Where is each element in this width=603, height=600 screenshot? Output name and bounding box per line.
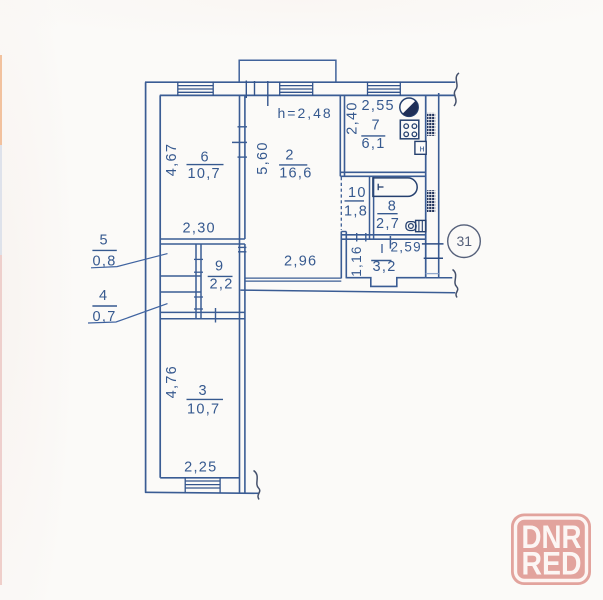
svg-text:2,7: 2,7 [376,216,400,232]
svg-text:31: 31 [457,233,473,249]
svg-text:5: 5 [100,232,109,248]
svg-text:10,7: 10,7 [188,166,221,182]
svg-text:9: 9 [215,259,224,275]
svg-text:10,7: 10,7 [187,401,220,417]
svg-text:8: 8 [388,199,397,215]
svg-text:2,25: 2,25 [184,459,217,475]
svg-text:5,60: 5,60 [255,141,271,174]
svg-text:2: 2 [285,148,294,164]
svg-text:1,16: 1,16 [349,245,364,276]
svg-text:1,8: 1,8 [344,204,368,220]
svg-text:h=2,48: h=2,48 [278,105,333,121]
svg-text:RED: RED [522,546,582,582]
svg-text:10: 10 [348,185,367,201]
svg-text:6: 6 [201,149,210,165]
svg-text:2,2: 2,2 [210,277,234,293]
svg-text:4,76: 4,76 [164,365,180,398]
svg-text:2,59: 2,59 [391,240,422,255]
svg-text:16,6: 16,6 [279,165,312,181]
svg-text:н: н [420,143,425,153]
svg-text:7: 7 [372,117,381,133]
svg-text:2,30: 2,30 [183,220,216,236]
svg-text:2,96: 2,96 [284,254,317,270]
svg-text:2,40: 2,40 [344,101,360,134]
svg-text:0,7: 0,7 [93,309,117,325]
svg-text:6,1: 6,1 [362,136,386,152]
svg-text:3,2: 3,2 [373,259,397,275]
svg-text:2,55: 2,55 [362,98,395,114]
svg-text:3: 3 [199,383,208,399]
svg-text:4,67: 4,67 [164,143,180,176]
svg-text:4: 4 [99,288,108,304]
svg-text:0,8: 0,8 [93,253,117,269]
